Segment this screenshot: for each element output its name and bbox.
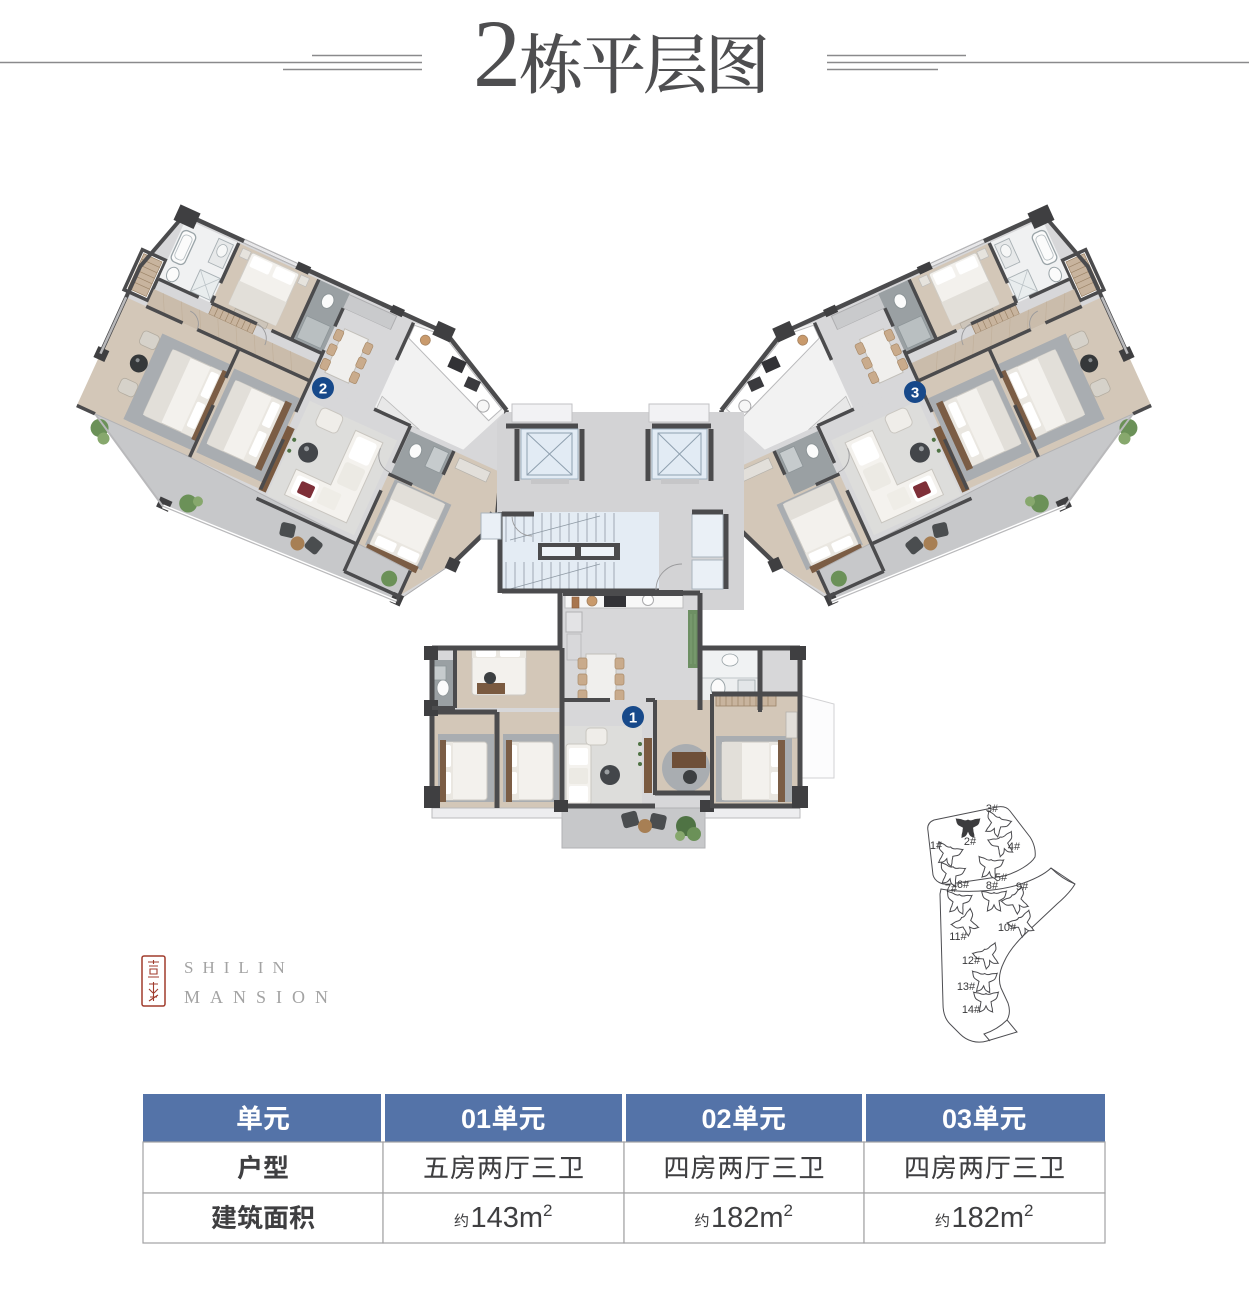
- svg-text:182m2: 182m2: [952, 1201, 1034, 1234]
- svg-text:11#: 11#: [949, 931, 967, 943]
- svg-text:2: 2: [473, 0, 521, 107]
- svg-text:182m2: 182m2: [711, 1201, 793, 1234]
- svg-text:13#: 13#: [957, 981, 976, 993]
- svg-text:02: 02: [701, 1104, 731, 1134]
- svg-text:1: 1: [629, 710, 637, 727]
- svg-text:10#: 10#: [998, 922, 1017, 934]
- svg-text:6#: 6#: [957, 879, 970, 891]
- svg-text:8#: 8#: [986, 880, 999, 892]
- svg-text:3#: 3#: [986, 803, 999, 815]
- svg-text:SHILIN: SHILIN: [184, 958, 294, 977]
- svg-text:143m2: 143m2: [471, 1201, 553, 1234]
- svg-text:9#: 9#: [1016, 881, 1029, 893]
- svg-text:4#: 4#: [1008, 841, 1021, 853]
- svg-text:2#: 2#: [964, 836, 977, 848]
- svg-text:3: 3: [911, 385, 919, 402]
- svg-text:03: 03: [942, 1104, 972, 1134]
- svg-text:01: 01: [461, 1104, 491, 1134]
- svg-text:12#: 12#: [962, 955, 981, 967]
- svg-text:MANSION: MANSION: [184, 987, 338, 1007]
- svg-text:1#: 1#: [930, 840, 943, 852]
- svg-text:2: 2: [319, 381, 327, 398]
- svg-text:7#: 7#: [945, 883, 958, 895]
- svg-text:14#: 14#: [962, 1004, 981, 1016]
